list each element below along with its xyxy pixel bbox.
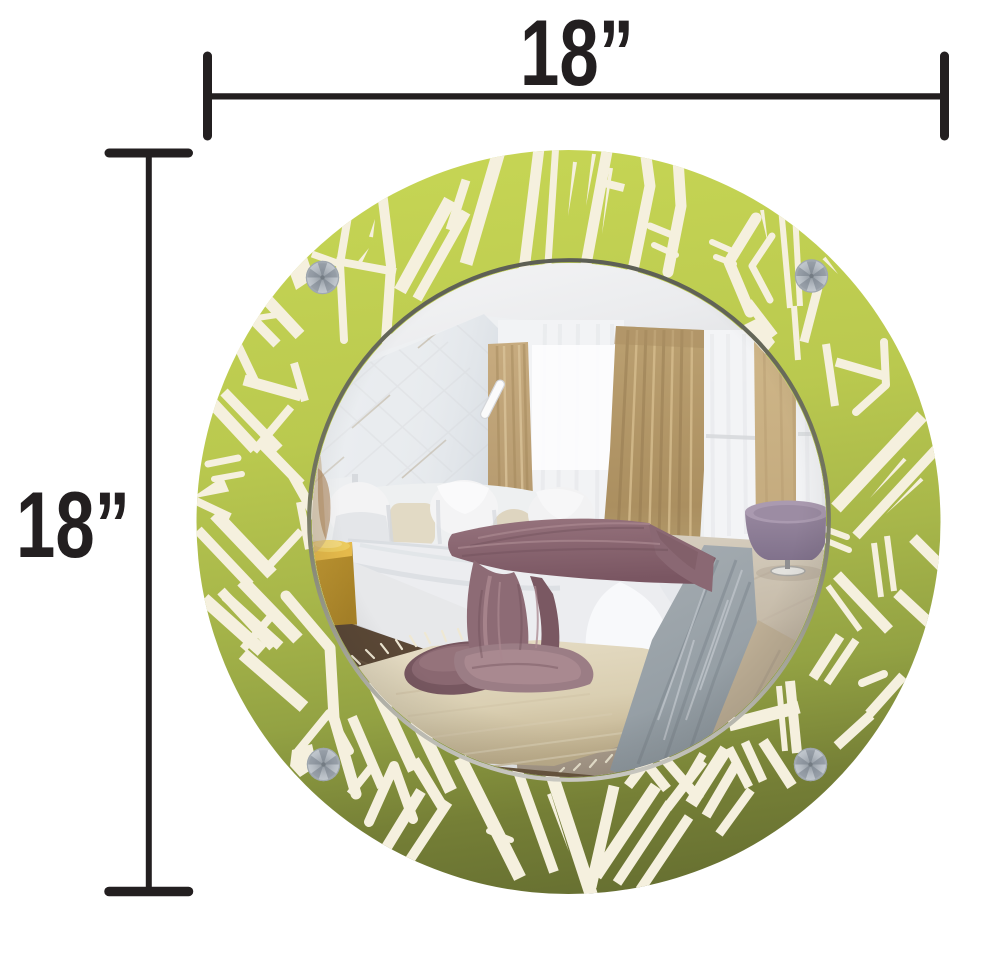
svg-text:18”: 18” <box>520 0 634 105</box>
svg-text:18”: 18” <box>16 472 130 577</box>
